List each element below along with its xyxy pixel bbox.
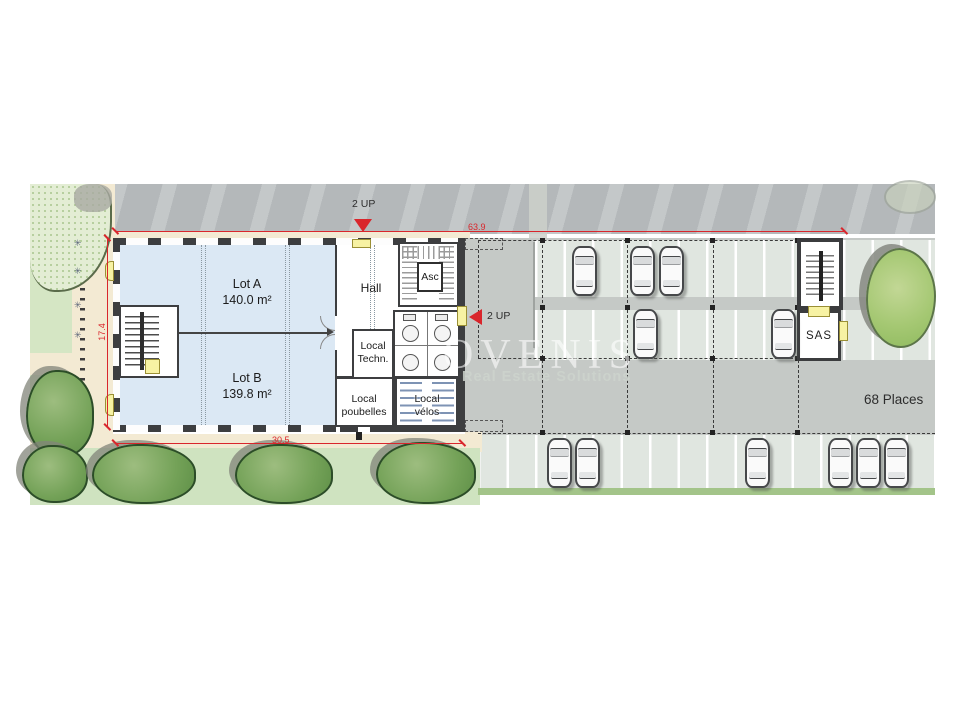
dimension-line-left: [107, 238, 108, 428]
leader-line: [178, 332, 328, 334]
west-stairwell: [119, 305, 179, 378]
column-marker: [710, 238, 715, 243]
sas-label: SAS: [806, 330, 832, 342]
column-marker: [625, 238, 630, 243]
column-marker: [540, 430, 545, 435]
toilet-icon: [402, 354, 419, 371]
plant-icon: ✳: [74, 238, 82, 249]
lot-a-label: Lot A 140.0 m²: [222, 277, 271, 308]
lot-b-label: Lot B 139.8 m²: [222, 371, 271, 402]
car-icon: [884, 438, 909, 488]
canopy-outline: [465, 238, 503, 250]
up-arrow-icon: [469, 309, 482, 325]
column-marker: [625, 430, 630, 435]
bay-boundary: [713, 240, 714, 433]
car-icon: [659, 246, 684, 296]
bush-icon: [376, 442, 476, 504]
plant-icon: ✳: [74, 300, 82, 311]
canopy-outline: [465, 420, 503, 432]
door-icon: [808, 306, 830, 317]
car-icon: [745, 438, 770, 488]
column-axis: [201, 245, 206, 425]
watermark-tagline: Real Estate Solutions: [462, 369, 631, 385]
leader-arrow-icon: [327, 328, 334, 336]
tree-icon: [866, 248, 936, 348]
door-icon: [145, 359, 160, 374]
column-marker: [710, 305, 715, 310]
up-marker-top-label: 2 UP: [352, 198, 375, 210]
car-icon: [771, 309, 796, 359]
plant-icon: ✳: [74, 266, 82, 277]
column-marker: [710, 356, 715, 361]
door-icon: [352, 239, 371, 248]
column-marker: [540, 238, 545, 243]
parking-stairwell: [797, 238, 843, 310]
wc-partition: [427, 312, 428, 376]
bush-icon: [92, 444, 196, 504]
column-marker: [540, 305, 545, 310]
dimension-top-value: 63.9: [468, 222, 486, 232]
car-icon: [547, 438, 572, 488]
elevator-cab: Asc: [417, 262, 443, 292]
facade-south-left: [113, 425, 340, 432]
up-marker-right-label: 2 UP: [487, 310, 510, 322]
stair-rail-icon: [819, 251, 823, 301]
elevator-stair-block: Asc: [398, 242, 459, 307]
up-arrow-icon: [354, 219, 372, 232]
sink-icon: [403, 314, 416, 321]
road: [113, 184, 935, 234]
elevator-label: Asc: [421, 271, 439, 283]
car-icon: [856, 438, 881, 488]
parking-capacity-label: 68 Places: [864, 392, 923, 407]
car-icon: [630, 246, 655, 296]
partition-wall: [335, 245, 337, 316]
column-axis: [285, 245, 290, 425]
tree-outline-icon: [884, 180, 936, 214]
hall-label: Hall: [361, 281, 382, 296]
column-marker: [795, 430, 800, 435]
column-marker: [625, 305, 630, 310]
dimension-bottom-value: 30.5: [272, 435, 290, 445]
bush-icon: [235, 444, 333, 504]
car-icon: [828, 438, 853, 488]
stair-treads-icon: [402, 246, 417, 301]
plant-icon: ✳: [74, 330, 82, 341]
bike-room-label: Local vélos: [414, 393, 439, 419]
shrub-shadow: [74, 184, 112, 212]
car-icon: [572, 246, 597, 296]
stair-rail-icon: [140, 312, 144, 370]
sas-room: SAS: [797, 310, 841, 361]
site-plan: ✳✳✳✳✳✳✳ SAS 68 Places: [0, 0, 960, 720]
toilet-icon: [402, 325, 419, 342]
road-crossing: [529, 184, 547, 238]
sink-icon: [435, 314, 448, 321]
bins-room-label: Local poubelles: [342, 393, 387, 419]
entry-post: [356, 432, 362, 440]
column-marker: [710, 430, 715, 435]
door-icon: [457, 306, 467, 326]
grass-verge: [478, 488, 935, 495]
car-icon: [575, 438, 600, 488]
tech-room-label: Local Techn.: [358, 340, 389, 366]
bay-boundary: [478, 240, 798, 241]
bay-boundary: [478, 433, 935, 434]
door-icon: [839, 321, 848, 341]
dimension-left-value: 17.4: [97, 323, 107, 341]
bush-icon: [22, 445, 88, 503]
